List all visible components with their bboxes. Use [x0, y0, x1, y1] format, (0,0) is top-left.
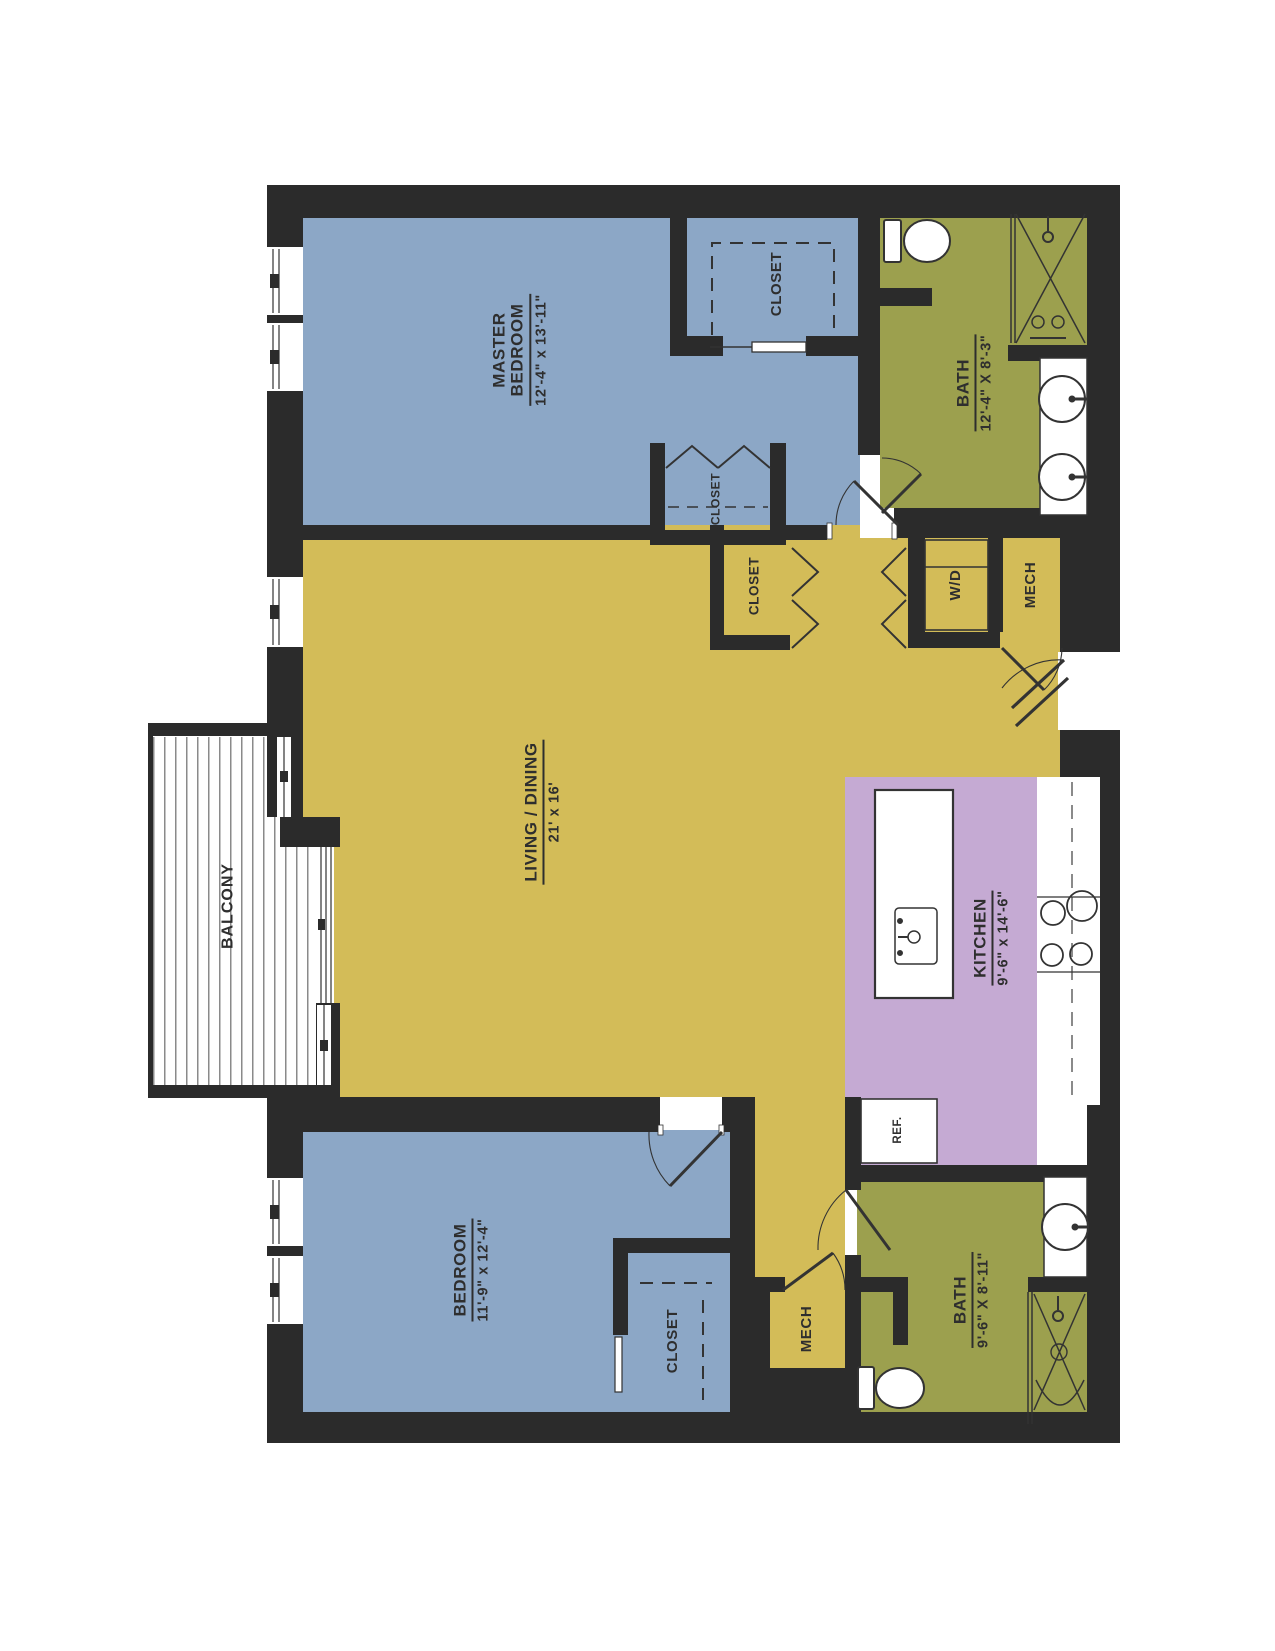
label-kitchen: KITCHEN 9'-6" x 14'-6" — [971, 890, 1012, 985]
wall — [267, 185, 1120, 218]
balcony-sidelite — [317, 1005, 331, 1085]
wall — [988, 538, 1003, 632]
label-balcony: BALCONY — [219, 863, 236, 949]
window — [267, 1178, 303, 1246]
wall — [1028, 1277, 1087, 1292]
balcony-rail — [148, 1085, 280, 1098]
wall — [267, 1085, 340, 1132]
wall — [303, 1097, 660, 1132]
wall — [880, 288, 932, 306]
wall — [858, 218, 880, 455]
wall — [722, 1097, 730, 1132]
wall — [894, 508, 1087, 538]
wall — [267, 1412, 1120, 1443]
wall — [1060, 508, 1087, 652]
wall — [893, 1277, 908, 1345]
wall — [1008, 345, 1087, 361]
wall — [280, 817, 340, 847]
balcony-sliding-door — [316, 847, 334, 1003]
wall — [845, 1182, 861, 1190]
wall — [670, 218, 687, 342]
window — [267, 1256, 303, 1324]
window — [267, 323, 303, 391]
wall — [710, 525, 724, 650]
kitchen-counter — [1037, 777, 1100, 1105]
label-master-bedroom: MASTERBEDROOM 12'-4" x 13'-11" — [490, 294, 549, 406]
floor-plan: MASTERBEDROOM 12'-4" x 13'-11" CLOSET BA… — [0, 0, 1275, 1651]
wall — [710, 635, 790, 650]
entry-door-opening — [1058, 652, 1125, 730]
wall — [908, 632, 1000, 648]
label-washer-dryer: W/D — [948, 570, 964, 601]
wall — [730, 1097, 755, 1425]
label-mech-upper: MECH — [1023, 562, 1039, 609]
wall — [670, 336, 723, 356]
label-hall-closet-small: CLOSET — [710, 473, 723, 525]
window — [267, 577, 303, 647]
wall — [806, 336, 860, 356]
balcony-rail — [148, 735, 153, 1087]
wall — [755, 1368, 861, 1412]
label-master-closet: CLOSET — [769, 252, 785, 316]
balcony-sidelite — [277, 737, 291, 817]
label-mech-lower: MECH — [799, 1306, 815, 1353]
label-bedroom-closet: CLOSET — [665, 1309, 681, 1373]
balcony-rail — [148, 723, 303, 736]
label-hall-closet: CLOSET — [748, 557, 763, 615]
label-bath-upper: BATH 12'-4" X 8'-3" — [954, 335, 995, 432]
window — [267, 247, 303, 315]
label-living-dining: LIVING / DINING 21' x 16' — [522, 739, 563, 884]
wall — [786, 525, 827, 540]
wall — [303, 525, 650, 540]
room-hall-lower — [755, 1097, 845, 1292]
wall — [613, 1238, 730, 1253]
room-entry-hall — [858, 538, 1087, 777]
wall — [755, 1277, 770, 1368]
label-bath-lower: BATH 9'-6" X 8'-11" — [951, 1252, 992, 1348]
room-living-dining-lower — [334, 817, 860, 1097]
label-refrigerator: REF. — [892, 1116, 904, 1143]
wall — [845, 1165, 1120, 1182]
wall — [613, 1238, 628, 1335]
label-bedroom: BEDROOM 11'-9" x 12'-4" — [451, 1218, 492, 1321]
